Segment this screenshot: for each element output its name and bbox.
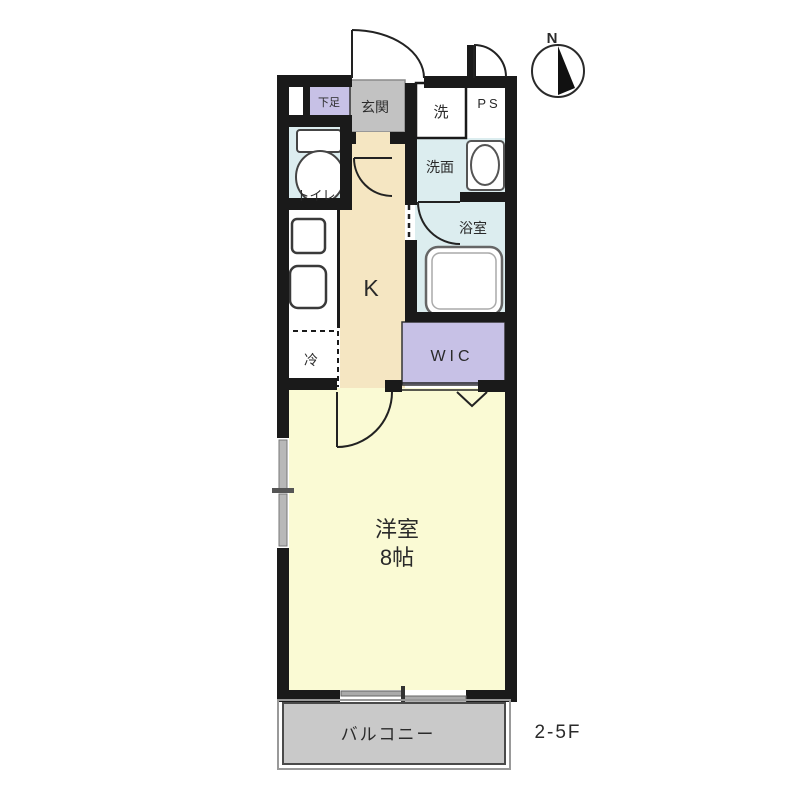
kitchen-label: K [363, 275, 379, 301]
wall-segment [390, 132, 405, 144]
floor-plan-svg: 下足 玄関 洗 PS トイレ 洗面 浴室 K 冷 WIC 洋室 8帖 バルコニー… [0, 0, 800, 800]
window-sash [279, 440, 287, 490]
ps-door-swing [474, 45, 506, 77]
bathtub-icon [426, 247, 502, 315]
basin-icon [471, 145, 499, 185]
bathroom-label: 浴室 [459, 220, 487, 236]
sliding-panel [341, 691, 404, 696]
genkan-label: 玄関 [361, 99, 389, 115]
wall-segment [405, 312, 517, 322]
floor-plan-page: 下足 玄関 洗 PS トイレ 洗面 浴室 K 冷 WIC 洋室 8帖 バルコニー… [0, 0, 800, 800]
wall-segment [277, 548, 289, 702]
main-room-size-label: 8帖 [380, 545, 414, 570]
fridge-label: 冷 [304, 352, 318, 368]
wall-segment [303, 85, 310, 117]
wall-segment [340, 132, 356, 144]
window-sash [279, 494, 287, 546]
wall-segment [277, 378, 337, 390]
floor-range-label: 2-5F [534, 722, 581, 743]
wall-segment [340, 115, 352, 210]
kitchen-sink-icon [290, 266, 326, 308]
wall-segment [460, 192, 505, 202]
wall-segment [385, 380, 402, 392]
toilet-label: トイレ [296, 188, 335, 203]
main-room-label: 洋室 [375, 517, 419, 542]
counter-edge-line [337, 210, 340, 328]
stove-icon [292, 219, 325, 253]
window-lock-tick [272, 488, 294, 493]
wic-label: WIC [430, 348, 473, 365]
geta-label: 下足 [318, 97, 340, 109]
wall-segment [405, 240, 417, 322]
washer-label: 洗 [433, 104, 448, 121]
toilet-tank-icon [297, 130, 341, 152]
washroom-label: 洗面 [426, 159, 454, 175]
compass [532, 45, 584, 97]
wall-segment [405, 83, 417, 205]
ps-label: PS [477, 96, 500, 111]
compass-north-label: N [547, 30, 558, 47]
balcony-label: バルコニー [341, 725, 436, 744]
wall-segment [277, 75, 352, 87]
wall-segment [478, 380, 517, 392]
entrance-door-swing [352, 30, 424, 78]
